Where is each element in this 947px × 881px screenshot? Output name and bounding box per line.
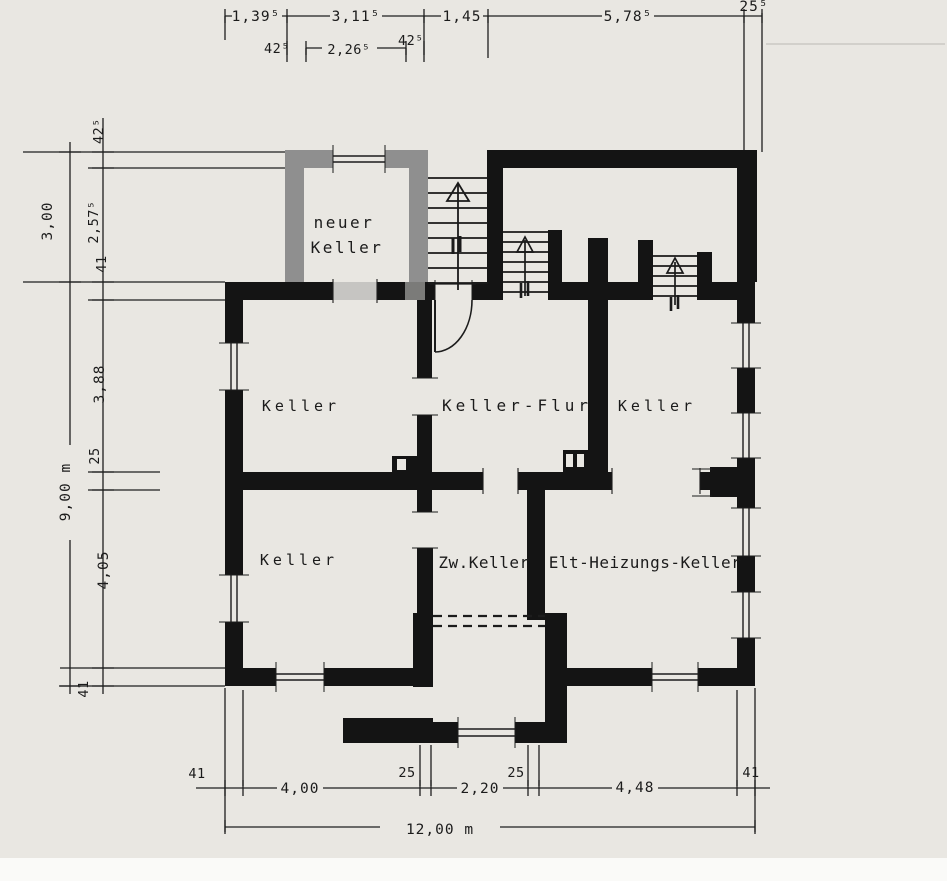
stair-b-right-wall	[697, 252, 712, 282]
dim-left-300: 3,00	[40, 202, 56, 241]
dim-left-41a: 41	[94, 255, 110, 272]
wall-nw-flur-upper	[417, 300, 432, 378]
neuer-keller-wall-north-right	[385, 150, 409, 168]
dim-bot-25b: 25	[507, 765, 524, 781]
wall-north-6	[697, 282, 755, 300]
label-zw-keller: Zw.Keller	[438, 553, 529, 572]
dim-bot-total-1200m: 12,00 m	[406, 822, 474, 838]
label-keller-sw: Keller	[260, 551, 338, 569]
dim-left-900m: 9,00 m	[58, 463, 74, 521]
wall-middle-2	[518, 472, 612, 490]
extension-wall-east	[545, 613, 567, 743]
wall-north-3	[425, 282, 435, 300]
dim-left-405: 4,05	[96, 551, 112, 590]
neuer-keller-wall-east	[409, 150, 428, 282]
paper-background	[0, 0, 947, 881]
dim-bot-41b: 41	[742, 765, 759, 781]
dim-bot-220: 2,20	[461, 781, 500, 797]
wall-sw-zw-upper	[417, 490, 432, 512]
chimney-center-flue-2	[577, 454, 584, 467]
wall-flur-ne	[588, 238, 608, 472]
label-neuer-keller-line2: Keller	[311, 238, 384, 257]
dim-left-41b: 41	[76, 680, 92, 697]
stair-b-left-wall	[638, 240, 653, 282]
extension-wall-west	[413, 613, 433, 687]
dim-top-578: 5,78⁵	[604, 9, 653, 25]
dim-top2-425b: 42⁵	[398, 33, 424, 49]
wall-north-4	[472, 282, 503, 300]
annex-wall-east	[737, 150, 757, 282]
dim-top2-226: 2,26⁵	[327, 42, 370, 58]
scan-edge-strip	[0, 858, 947, 881]
dim-bot-400: 4,00	[281, 781, 320, 797]
dim-top-139: 1,39⁵	[232, 9, 281, 25]
dim-left-425: 42⁵	[91, 118, 107, 144]
label-keller-flur: Keller-Flur	[442, 396, 592, 415]
dim-top2-425a: 42⁵	[264, 41, 290, 57]
neuer-keller-wall-north-left	[285, 150, 333, 168]
dim-top-311: 3,11⁵	[332, 9, 381, 25]
pier-east-wall	[710, 467, 737, 497]
floor-plan-scan: neuer Keller Keller Keller-Flur Keller K…	[0, 0, 947, 881]
extension-wall-south-left	[433, 722, 458, 743]
dim-top-145: 1,45	[443, 9, 482, 25]
wall-north-2	[377, 282, 405, 300]
chimney-west-flue	[397, 459, 406, 470]
stair-a-side-wall	[548, 230, 562, 282]
basement-floor-plan: neuer Keller Keller Keller-Flur Keller K…	[0, 0, 947, 881]
neuer-keller-wall-west	[285, 150, 304, 282]
label-keller-nw: Keller	[262, 397, 340, 415]
wall-zw-ehk	[527, 490, 545, 620]
north-wall-infill-dark	[405, 282, 425, 300]
dim-left-2575: 2,57⁵	[86, 200, 102, 243]
dim-left-388: 3,88	[92, 365, 108, 404]
wall-north-1	[225, 282, 333, 300]
dim-bot-448: 4,48	[616, 780, 655, 796]
wall-nw-flur-lower	[417, 415, 432, 472]
dim-top-25: 25⁵	[739, 0, 768, 15]
dim-bot-41a: 41	[188, 766, 205, 782]
wall-sw-zw-lower	[417, 548, 433, 618]
dim-bot-25a: 25	[398, 765, 415, 781]
wall-middle-1	[243, 472, 483, 490]
extension-wing-southwest	[343, 718, 433, 743]
dim-left-25: 25	[87, 447, 103, 464]
north-wall-infill-light	[333, 282, 377, 300]
label-keller-ne: Keller	[618, 397, 696, 415]
chimney-center-flue-1	[566, 454, 573, 467]
label-elt-heizungs-keller: Elt-Heizungs-Keller	[549, 553, 742, 572]
annex-wall-north	[487, 150, 757, 168]
label-neuer-keller-line1: neuer	[314, 213, 375, 232]
annex-wall-west	[487, 150, 503, 282]
